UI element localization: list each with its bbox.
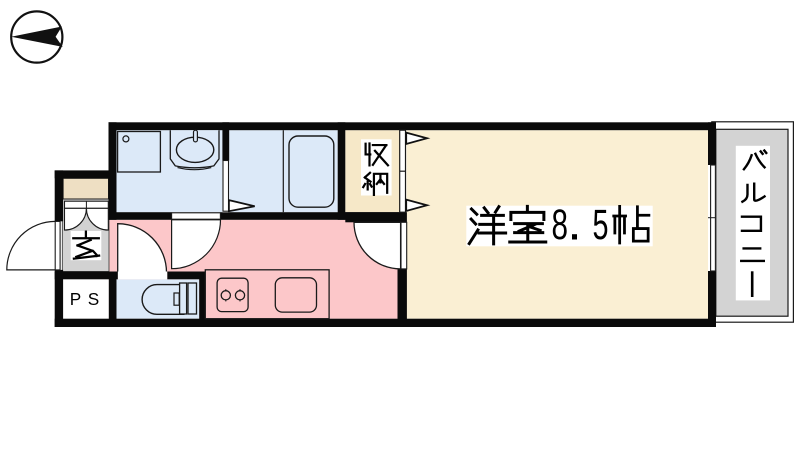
svg-text:PS: PS bbox=[70, 289, 106, 309]
svg-text:5: 5 bbox=[593, 202, 609, 249]
svg-text:8: 8 bbox=[552, 202, 569, 249]
